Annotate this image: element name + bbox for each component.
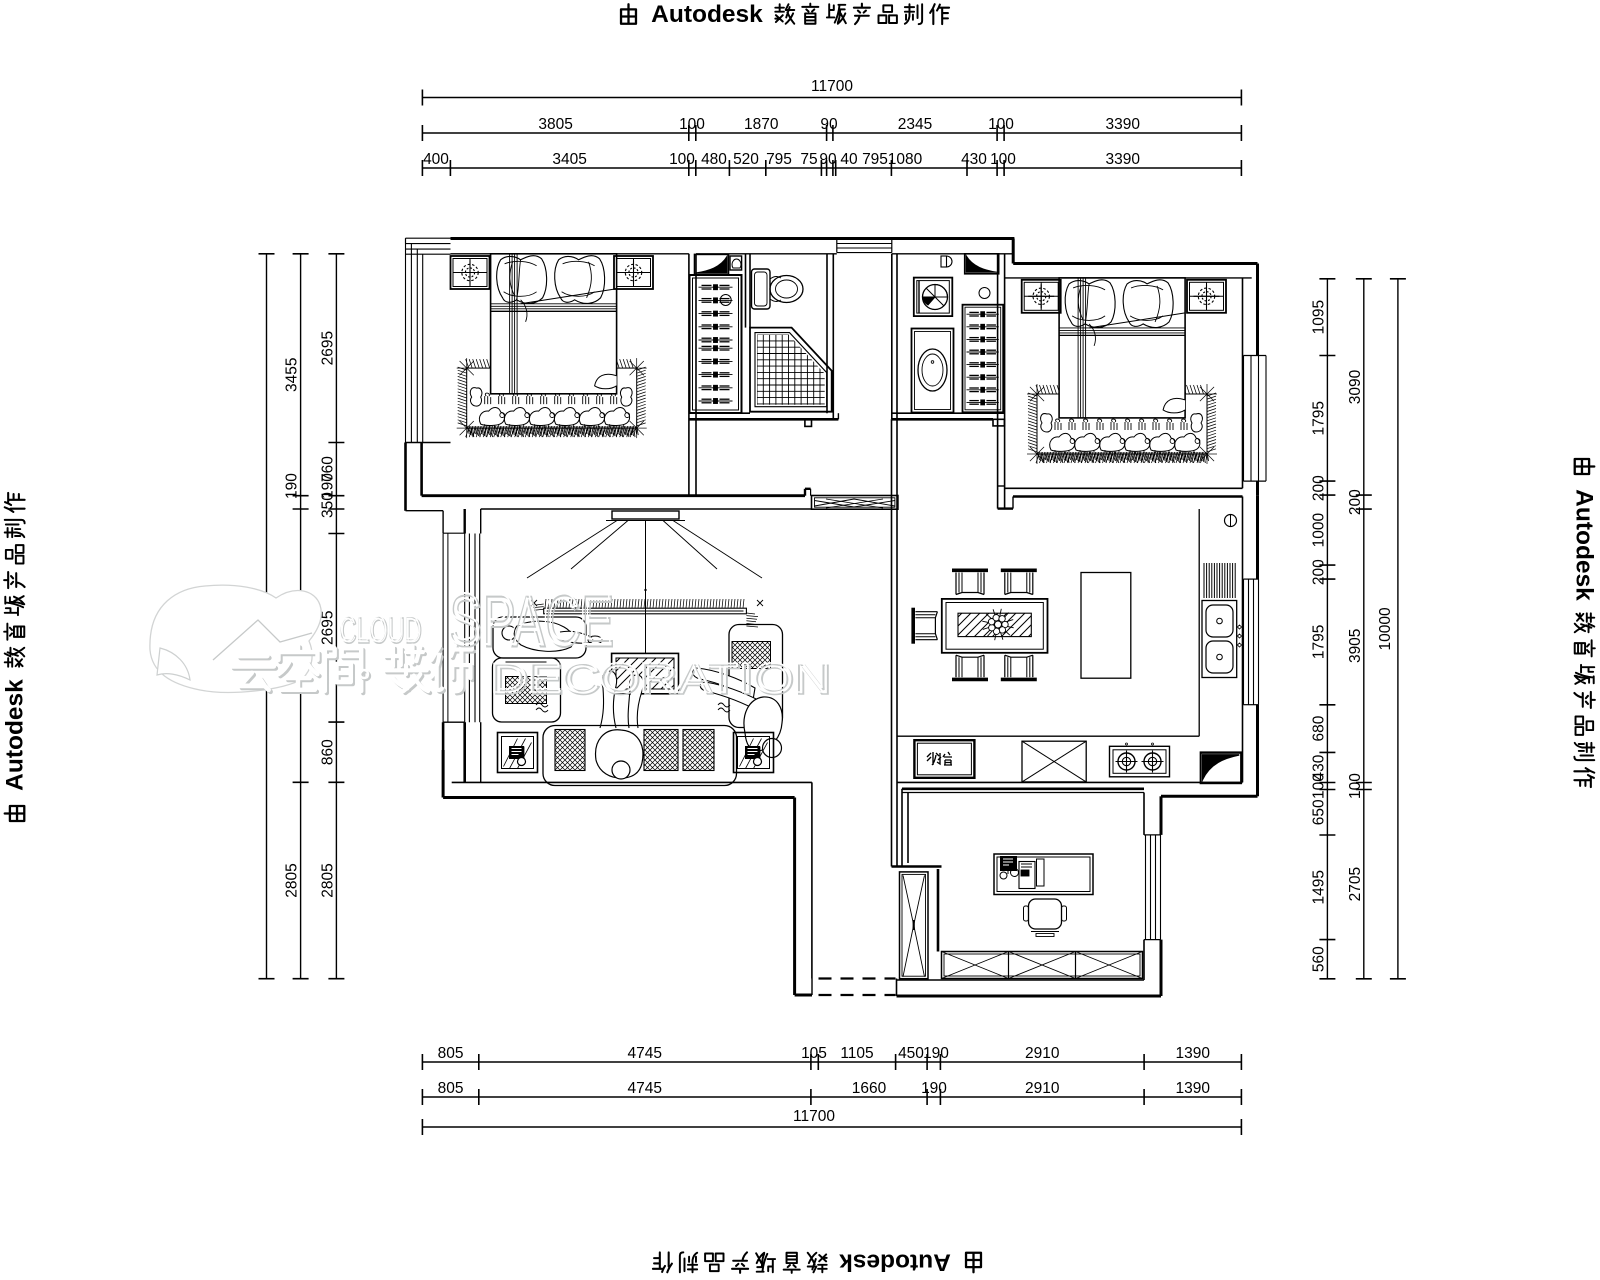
svg-text:2805: 2805 <box>319 863 336 897</box>
svg-text:75: 75 <box>800 151 817 168</box>
svg-text:3090: 3090 <box>1347 369 1364 404</box>
svg-text:3455: 3455 <box>284 357 301 391</box>
svg-text:2910: 2910 <box>1025 1080 1060 1097</box>
svg-text:3390: 3390 <box>1106 116 1141 133</box>
svg-text:3905: 3905 <box>1347 629 1364 663</box>
svg-text:2695: 2695 <box>319 331 336 365</box>
svg-text:40: 40 <box>840 151 858 168</box>
svg-text:795: 795 <box>862 151 888 168</box>
svg-text:4745: 4745 <box>628 1080 662 1097</box>
svg-text:2695: 2695 <box>319 611 336 645</box>
svg-text:Autodesk: Autodesk <box>1571 489 1598 601</box>
svg-text:350: 350 <box>319 492 336 518</box>
svg-text:805: 805 <box>438 1080 464 1097</box>
svg-text:805: 805 <box>438 1045 464 1062</box>
svg-text:100: 100 <box>669 151 695 168</box>
svg-text:450: 450 <box>898 1045 924 1062</box>
svg-text:560: 560 <box>1310 946 1327 972</box>
svg-text:1795: 1795 <box>1310 401 1327 435</box>
svg-text:100: 100 <box>988 116 1014 133</box>
svg-text:11700: 11700 <box>811 78 853 95</box>
svg-text:90: 90 <box>820 116 838 133</box>
svg-text:1095: 1095 <box>1310 300 1327 334</box>
svg-text:3805: 3805 <box>538 116 572 133</box>
svg-text:190: 190 <box>284 473 301 499</box>
svg-text:1105: 1105 <box>840 1045 873 1062</box>
svg-text:430: 430 <box>961 151 987 168</box>
svg-text:1495: 1495 <box>1310 870 1327 904</box>
svg-text:650: 650 <box>1310 799 1327 825</box>
svg-text:90: 90 <box>819 151 837 168</box>
svg-text:860: 860 <box>319 739 336 765</box>
svg-text:Autodesk: Autodesk <box>651 1 763 28</box>
svg-text:2910: 2910 <box>1025 1045 1060 1062</box>
svg-text:480: 480 <box>701 151 727 168</box>
svg-text:100: 100 <box>1310 773 1327 799</box>
svg-text:11700: 11700 <box>793 1108 835 1125</box>
svg-text:Autodesk: Autodesk <box>2 679 29 791</box>
svg-text:1080: 1080 <box>888 151 923 168</box>
svg-text:100: 100 <box>990 151 1016 168</box>
svg-text:200: 200 <box>1310 475 1327 501</box>
svg-text:1390: 1390 <box>1176 1045 1211 1062</box>
svg-text:2805: 2805 <box>284 863 301 897</box>
svg-text:3390: 3390 <box>1106 151 1141 168</box>
svg-text:1660: 1660 <box>852 1080 887 1097</box>
svg-text:1390: 1390 <box>1176 1080 1211 1097</box>
svg-text:CLOUD: CLOUD <box>338 608 420 649</box>
svg-text:190: 190 <box>921 1080 947 1097</box>
svg-text:2705: 2705 <box>1347 867 1364 901</box>
svg-text:DECORATION: DECORATION <box>490 654 830 701</box>
svg-text:100: 100 <box>679 116 705 133</box>
svg-text:10000: 10000 <box>1377 607 1394 650</box>
svg-text:4745: 4745 <box>628 1045 662 1062</box>
svg-text:1870: 1870 <box>744 116 779 133</box>
svg-text:190: 190 <box>923 1045 949 1062</box>
svg-text:1795: 1795 <box>1310 625 1327 659</box>
svg-text:200: 200 <box>1347 489 1364 515</box>
svg-text:680: 680 <box>1310 715 1327 741</box>
svg-text:2345: 2345 <box>898 116 932 133</box>
svg-text:105: 105 <box>801 1045 827 1062</box>
svg-text:100: 100 <box>1347 773 1364 799</box>
svg-text:795: 795 <box>766 151 792 168</box>
svg-text:1000: 1000 <box>1310 512 1327 547</box>
svg-text:400: 400 <box>423 151 449 168</box>
svg-text:Autodesk: Autodesk <box>839 1249 951 1276</box>
svg-text:200: 200 <box>1310 559 1327 585</box>
svg-text:520: 520 <box>733 151 759 168</box>
svg-text:3405: 3405 <box>552 151 586 168</box>
